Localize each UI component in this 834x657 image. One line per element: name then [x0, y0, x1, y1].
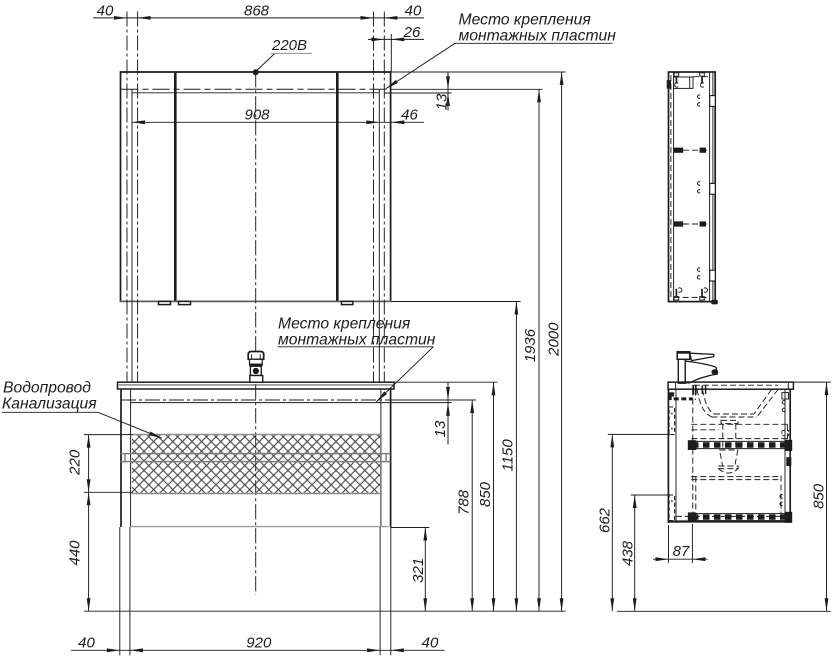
- svg-text:87: 87: [673, 543, 690, 560]
- svg-text:220: 220: [67, 449, 84, 476]
- svg-text:монтажных пластин: монтажных пластин: [459, 28, 617, 45]
- svg-text:850: 850: [810, 483, 827, 509]
- svg-text:868: 868: [244, 2, 270, 19]
- svg-text:908: 908: [244, 107, 270, 124]
- svg-text:40: 40: [405, 2, 422, 19]
- svg-text:13: 13: [432, 420, 449, 437]
- svg-text:850: 850: [477, 481, 494, 507]
- svg-text:662: 662: [597, 507, 614, 533]
- svg-text:920: 920: [246, 634, 272, 651]
- svg-text:46: 46: [401, 107, 418, 124]
- svg-text:220В: 220В: [271, 37, 307, 54]
- svg-text:Канализация: Канализация: [2, 395, 97, 412]
- svg-text:40: 40: [78, 634, 95, 651]
- svg-text:40: 40: [422, 634, 439, 651]
- svg-text:788: 788: [455, 489, 472, 515]
- svg-text:Место крепления: Место крепления: [459, 12, 592, 29]
- svg-text:1150: 1150: [500, 439, 517, 472]
- svg-text:Место крепления: Место крепления: [278, 315, 411, 332]
- svg-text:2000: 2000: [545, 322, 562, 357]
- svg-text:Водопровод: Водопровод: [3, 379, 91, 396]
- svg-text:1936: 1936: [522, 328, 539, 362]
- svg-text:40: 40: [97, 2, 114, 19]
- svg-text:26: 26: [403, 24, 421, 41]
- svg-text:монтажных пластин: монтажных пластин: [278, 331, 436, 348]
- svg-text:13: 13: [433, 93, 450, 110]
- svg-text:321: 321: [410, 558, 427, 583]
- svg-text:440: 440: [67, 540, 84, 566]
- svg-text:438: 438: [620, 540, 637, 566]
